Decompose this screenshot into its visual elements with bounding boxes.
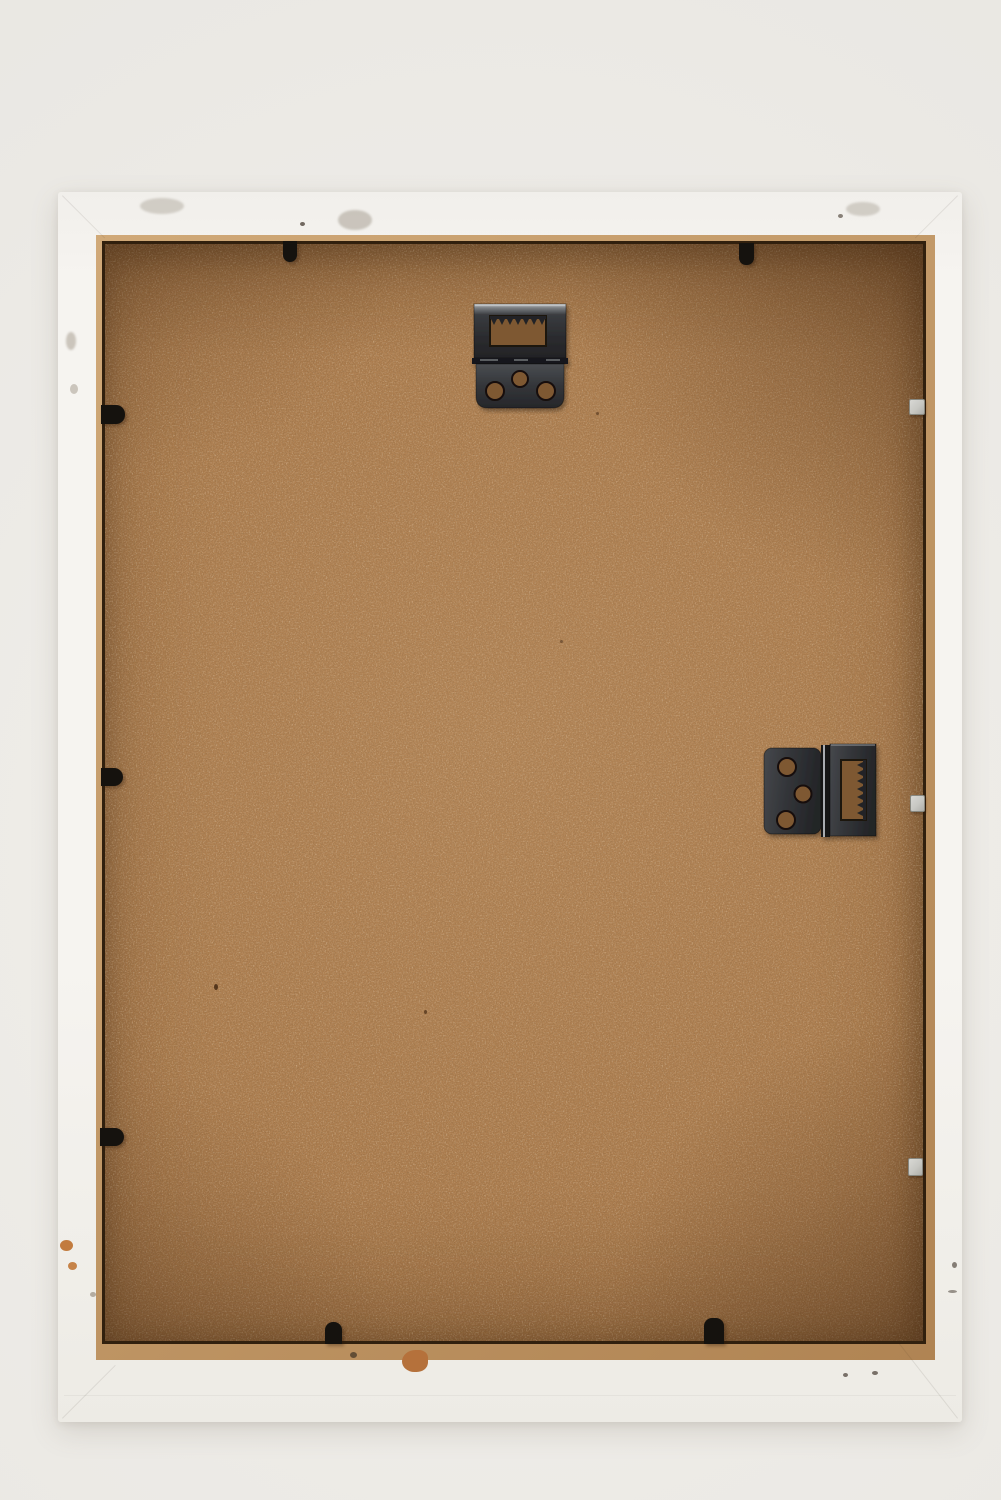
board-speck (424, 1010, 427, 1014)
retaining-clip-top-1 (283, 241, 297, 262)
paint-chip (843, 1373, 848, 1377)
glazing-point-right-3 (908, 1158, 923, 1176)
paint-chip (948, 1290, 957, 1293)
mitre-joint-bottom-left (62, 1365, 116, 1419)
paint-chip (350, 1352, 357, 1358)
frame-bottom-crease (64, 1395, 956, 1396)
paint-chip (838, 214, 843, 218)
board-speck (596, 412, 599, 415)
mitre-joint-top-right (915, 195, 958, 238)
retaining-clip-top-2 (739, 243, 754, 265)
paint-scuff (846, 202, 880, 216)
sawtooth-hanger-right (758, 738, 882, 846)
paint-scuff (338, 210, 372, 230)
retaining-clip-bottom-2 (704, 1318, 724, 1344)
glazing-point-right-2 (910, 795, 925, 812)
glazing-point-right-1 (909, 399, 925, 415)
retaining-clip-left-3 (100, 1128, 124, 1146)
retaining-clip-left-1 (101, 405, 125, 424)
paint-chip (70, 384, 78, 394)
paint-chip-brown (402, 1350, 428, 1372)
paint-chip (872, 1371, 878, 1375)
paint-scuff (66, 332, 76, 350)
board-speck (214, 984, 218, 990)
paint-chip-orange (68, 1262, 77, 1270)
retaining-clip-left-2 (101, 768, 123, 786)
photo-stage (0, 0, 1001, 1500)
paint-chip (300, 222, 305, 226)
mitre-joint-top-left (62, 195, 105, 238)
paint-chip (952, 1262, 957, 1268)
paint-scuff (140, 198, 184, 214)
paint-chip (90, 1292, 96, 1297)
sawtooth-hanger-top (468, 296, 572, 414)
retaining-clip-bottom-1 (325, 1322, 342, 1344)
paint-chip-orange (60, 1240, 73, 1251)
board-speck (560, 640, 563, 643)
